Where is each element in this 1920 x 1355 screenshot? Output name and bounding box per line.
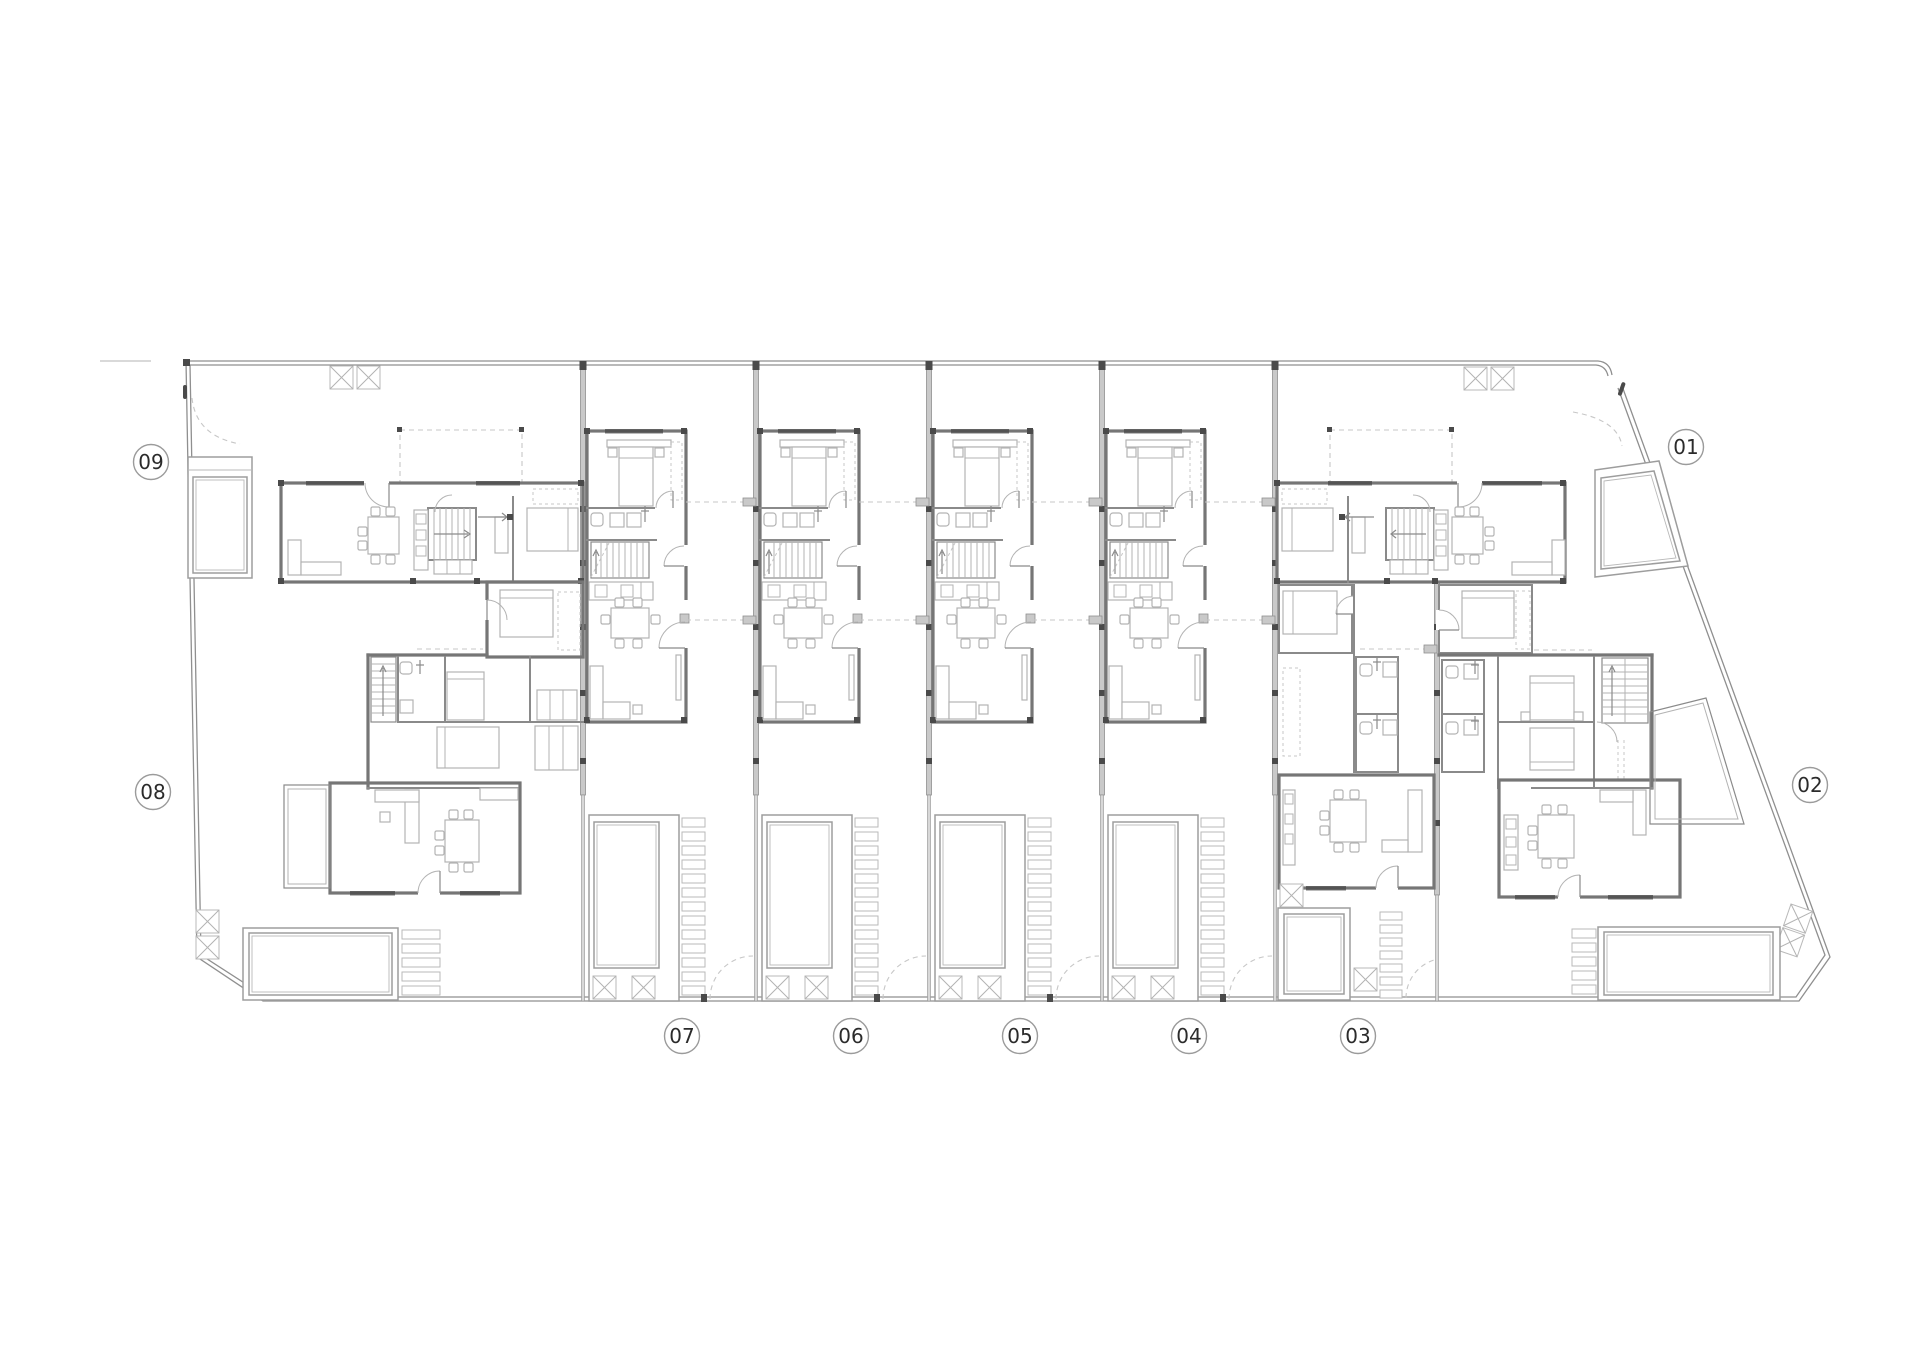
wardrobe <box>533 489 578 504</box>
sofa <box>288 540 341 575</box>
door-arc <box>1597 722 1617 742</box>
roof-overhang-right <box>1327 427 1454 484</box>
skylight-group-top-right <box>1464 367 1514 390</box>
dining-table <box>435 810 479 872</box>
sofa <box>1512 540 1565 575</box>
entrance-swing-right <box>1573 412 1622 446</box>
skylight-group-bottom-left <box>196 910 219 959</box>
dresser <box>495 517 508 553</box>
closet <box>1390 560 1428 574</box>
dining-table <box>1320 790 1366 852</box>
unit-label-03: 03 <box>1341 1019 1376 1054</box>
bed <box>500 590 553 637</box>
unit-label-text: 06 <box>838 1024 863 1048</box>
bed <box>1283 591 1337 634</box>
pool-01 <box>1595 461 1688 577</box>
sofa <box>1382 790 1422 852</box>
wardrobe <box>1283 668 1300 756</box>
unit-label-07: 07 <box>665 1019 700 1054</box>
garden-fence <box>582 795 585 1001</box>
bed <box>437 727 499 768</box>
house-01 <box>1274 480 1566 584</box>
sofa <box>1600 790 1646 835</box>
unit-label-text: 07 <box>669 1024 694 1048</box>
unit-label-08: 08 <box>136 775 171 810</box>
terrace <box>284 785 330 888</box>
dresser <box>1352 517 1365 553</box>
unit-04 <box>1103 428 1275 1002</box>
unit-label-text: 04 <box>1176 1024 1201 1048</box>
patio <box>1650 698 1744 824</box>
stairs <box>1386 508 1434 560</box>
closet <box>434 560 472 574</box>
unit-05 <box>930 428 1102 1002</box>
pool-08 <box>243 928 440 1000</box>
pool-02 <box>1572 927 1780 1000</box>
bathrooms <box>1442 660 1484 772</box>
wardrobe <box>558 592 580 650</box>
bed <box>1530 728 1574 770</box>
garden-fence <box>755 795 758 1001</box>
unit-label-text: 05 <box>1007 1024 1032 1048</box>
shower <box>400 700 413 713</box>
entrance-swing-left <box>192 398 240 444</box>
pool-09 <box>188 457 252 578</box>
garden-fence <box>1101 795 1104 1001</box>
deck-slats <box>402 930 440 995</box>
house-02 <box>1436 585 1744 900</box>
stairs <box>371 657 396 722</box>
unit-label-text: 02 <box>1797 773 1822 797</box>
unit-label-01: 01 <box>1669 430 1704 465</box>
kitchen-counter <box>480 788 518 800</box>
closet <box>537 690 577 720</box>
house-09 <box>278 480 584 584</box>
skylight-group-bottom-right <box>1775 904 1812 957</box>
toilet <box>400 662 412 674</box>
deck-slats <box>1572 929 1596 994</box>
deck-slats <box>1380 912 1402 998</box>
bed <box>527 508 578 551</box>
floor-plan-canvas: 010203040506070809 <box>0 0 1920 1355</box>
roof-overhang-left <box>397 427 524 484</box>
unit-label-09: 09 <box>134 445 169 480</box>
garden-03 <box>1278 884 1434 1000</box>
party-wall <box>927 363 932 795</box>
dining-table <box>1452 507 1494 564</box>
dining-table <box>1528 805 1574 868</box>
bathrooms <box>1356 657 1398 772</box>
sofa <box>375 790 419 843</box>
unit-07 <box>584 428 756 1002</box>
party-wall <box>1100 363 1105 795</box>
skylight-group-top-left <box>330 366 380 389</box>
garden-fence <box>928 795 931 1001</box>
unit-label-text: 09 <box>138 450 163 474</box>
wardrobe <box>1282 489 1327 504</box>
stairs <box>1602 658 1648 723</box>
bed <box>1282 508 1333 551</box>
unit-label-04: 04 <box>1172 1019 1207 1054</box>
house-03 <box>1279 585 1437 891</box>
gate-tick <box>183 385 187 399</box>
wardrobe <box>535 726 578 770</box>
party-wall <box>754 363 759 795</box>
stairs <box>428 508 476 560</box>
living-room <box>1499 780 1680 897</box>
unit-06 <box>757 428 929 1002</box>
house-08 <box>284 582 583 896</box>
unit-label-05: 05 <box>1003 1019 1038 1054</box>
dining-table <box>358 507 399 564</box>
unit-label-text: 08 <box>140 780 165 804</box>
unit-label-06: 06 <box>834 1019 869 1054</box>
unit-label-text: 03 <box>1345 1024 1370 1048</box>
unit-label-02: 02 <box>1793 768 1828 803</box>
unit-label-text: 01 <box>1673 435 1698 459</box>
wardrobe <box>1516 591 1530 649</box>
garden-fence <box>1274 795 1277 1001</box>
door-arc <box>435 495 452 512</box>
